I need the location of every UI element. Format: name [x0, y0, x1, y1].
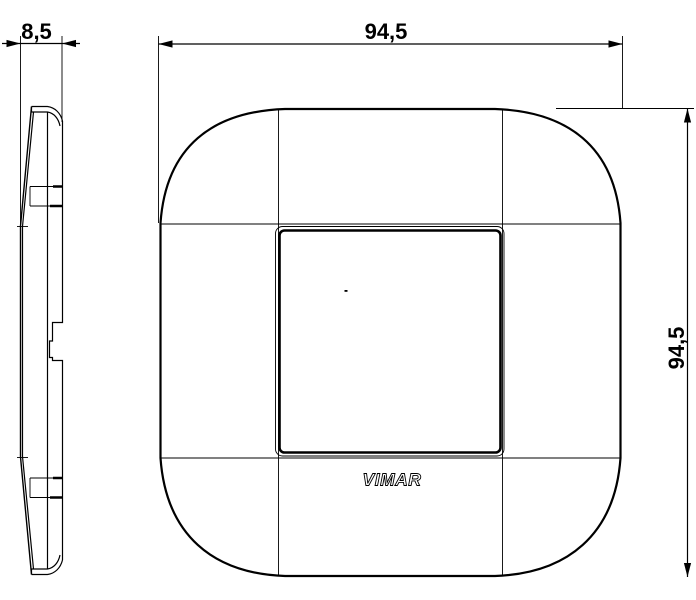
front-view: VIMAR [161, 109, 621, 576]
central-opening-outer [276, 227, 505, 457]
side-profile-upper-tab [30, 187, 63, 207]
plate-outline [161, 109, 621, 576]
side-view [17, 107, 63, 575]
side-profile-lower-tab [30, 478, 63, 498]
side-profile-bottom-corner [48, 555, 63, 575]
central-opening [276, 227, 505, 457]
center-mark [345, 290, 348, 292]
dimension-front-height: 94,5 [556, 109, 694, 578]
dimension-side-width: 8,5 [2, 19, 80, 230]
central-opening-inner [280, 231, 501, 453]
side-profile-top-corner [48, 107, 63, 127]
vimar-logo: VIMAR [363, 470, 422, 490]
arrowhead-right [609, 40, 623, 47]
side-profile-bottom-rim [32, 569, 48, 575]
drawing-sheet: 8,5 VIMAR [0, 0, 696, 600]
dim-side-width-label: 8,5 [21, 19, 52, 44]
arrowhead-left [159, 40, 173, 47]
dim-front-height-label: 94,5 [664, 327, 689, 370]
technical-drawing: 8,5 VIMAR [0, 0, 696, 600]
grid-lines [161, 110, 620, 575]
dim-front-width-label: 94,5 [365, 19, 408, 44]
arrowhead-top [684, 109, 691, 123]
arrowhead-bottom [684, 563, 691, 577]
side-profile-top-rim [32, 107, 48, 113]
arrowhead-left [7, 40, 21, 47]
arrowhead-right [62, 40, 76, 47]
